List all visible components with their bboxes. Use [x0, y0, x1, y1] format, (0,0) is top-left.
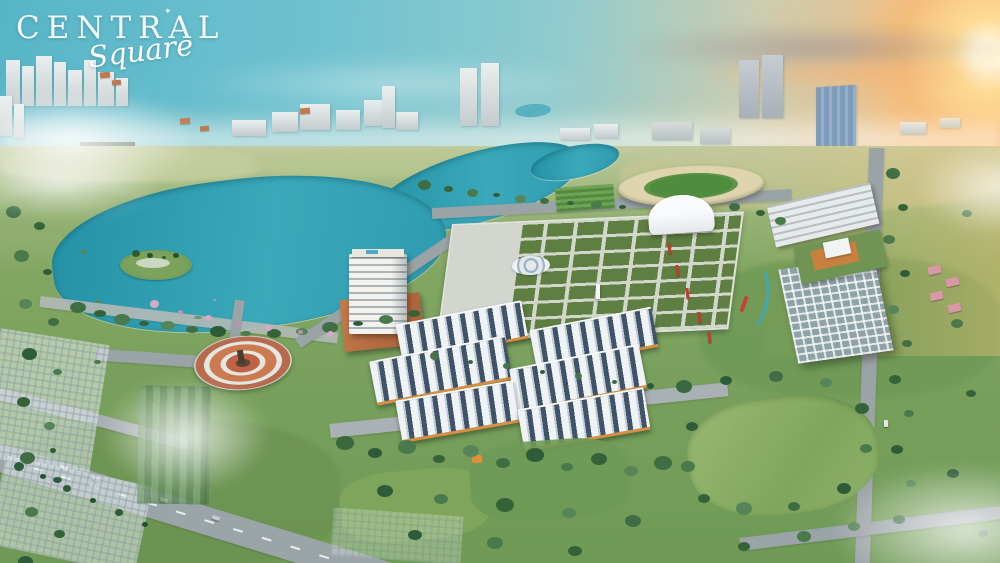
village-house: [112, 80, 121, 86]
playground: [472, 455, 482, 463]
tree-cluster: [886, 168, 900, 179]
street-trees: [430, 352, 439, 360]
palm-trees: [14, 462, 24, 471]
lakeside-trees: [70, 302, 86, 313]
apartment-slab: [272, 112, 298, 132]
highrise-tower: [349, 254, 407, 334]
blue-glass-tower: [816, 85, 856, 150]
future-building-ghost: [330, 508, 463, 563]
twin-tower-gray: [739, 60, 759, 118]
twin-tower-white: [460, 68, 477, 126]
apartment-slab: [336, 110, 360, 130]
tree-cluster: [676, 380, 692, 393]
car: [884, 420, 888, 427]
apartment-slab: [652, 122, 692, 140]
island-beach: [136, 258, 170, 268]
distant-tower: [382, 86, 395, 128]
twin-tower-gray: [762, 55, 783, 118]
apartment-slab: [594, 124, 618, 138]
twin-tower-white: [481, 63, 499, 126]
village-house: [200, 126, 209, 132]
village-house: [300, 108, 310, 115]
tower-roof: [352, 249, 404, 257]
apartment-slab: [232, 120, 266, 136]
apartment-slab: [396, 112, 418, 130]
tree-cluster: [336, 436, 354, 450]
apartment-slab: [940, 118, 960, 128]
island-palm-trees: [132, 250, 140, 257]
cloud: [100, 378, 270, 493]
sparkle-icon: ✦: [164, 6, 172, 17]
aerial-render-central-square: CENTRAL ✦ Square: [0, 0, 1000, 563]
rooftop-pool: [366, 250, 378, 254]
sports-fields: [555, 184, 615, 212]
apartment-slab: [900, 122, 926, 134]
plaza-monument: [596, 284, 600, 299]
cloud: [180, 56, 610, 112]
tree-cluster: [418, 180, 431, 190]
apartment-slab: [560, 128, 590, 140]
apartment-slab: [700, 128, 730, 144]
flowering-trees: [150, 300, 159, 308]
project-logo: CENTRAL ✦ Square: [16, 4, 236, 74]
